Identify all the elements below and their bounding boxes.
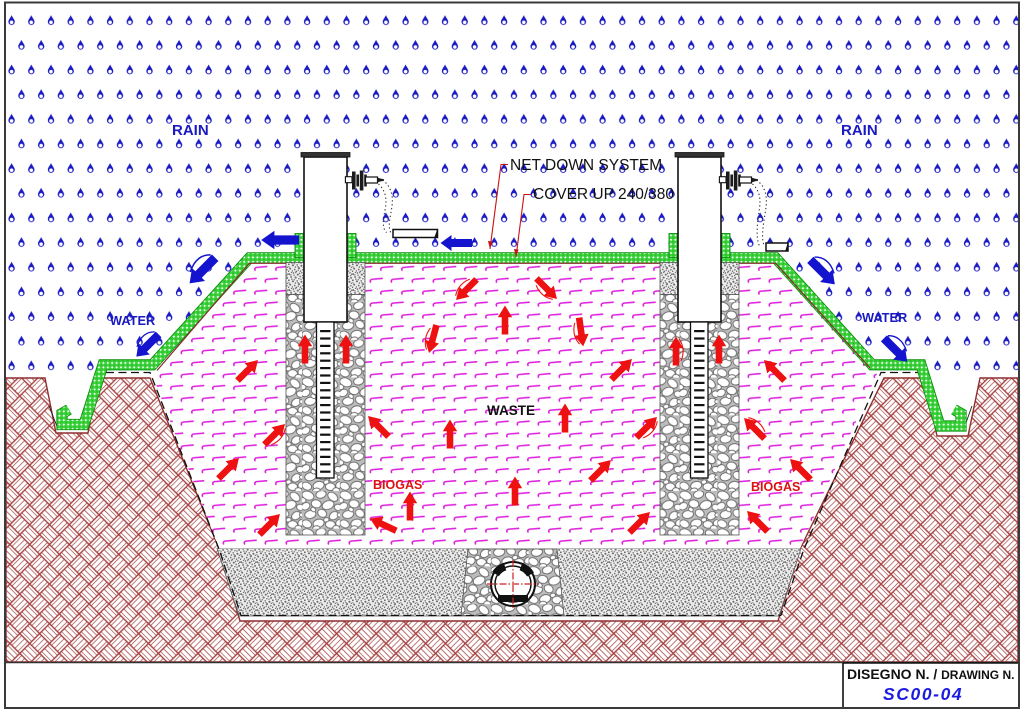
svg-text:WATER: WATER xyxy=(862,310,907,325)
svg-text:WASTE: WASTE xyxy=(487,403,535,418)
svg-text:WATER: WATER xyxy=(110,313,155,328)
svg-text:RAIN: RAIN xyxy=(841,122,878,139)
svg-text:DISEGNO N. / DRAWING N.: DISEGNO N. / DRAWING N. xyxy=(847,666,1014,682)
svg-text:RAIN: RAIN xyxy=(172,122,209,139)
svg-text:BIOGAS: BIOGAS xyxy=(373,478,422,492)
svg-text:SC00-04: SC00-04 xyxy=(883,684,963,704)
svg-text:COVER UP 240/380: COVER UP 240/380 xyxy=(533,186,674,203)
svg-text:NET DOWN SYSTEM: NET DOWN SYSTEM xyxy=(510,157,662,174)
svg-text:BIOGAS: BIOGAS xyxy=(751,480,800,494)
